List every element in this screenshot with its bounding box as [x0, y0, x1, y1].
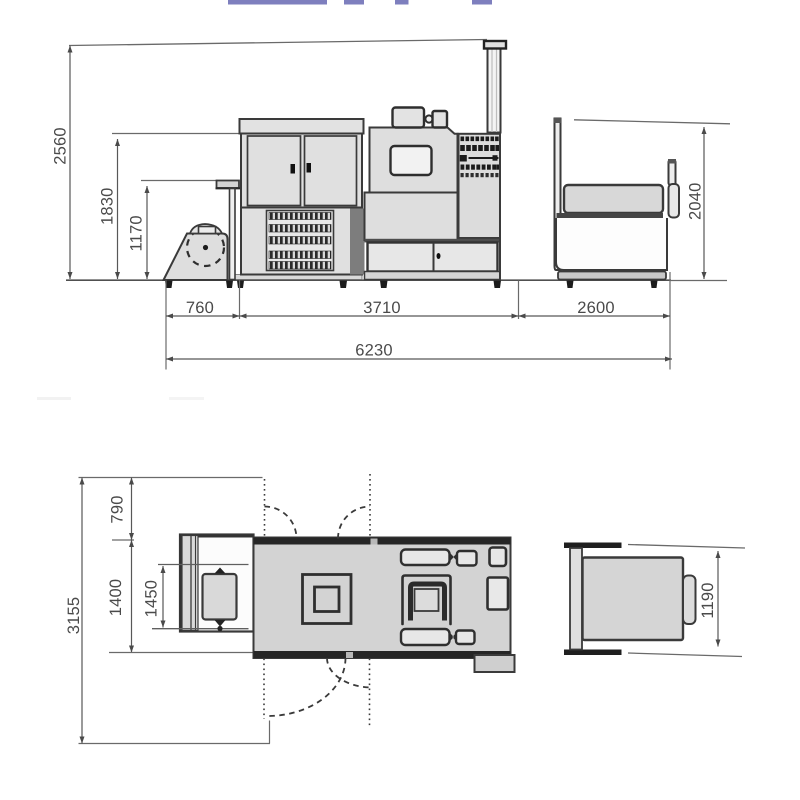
svg-text:790: 790 — [108, 495, 126, 523]
svg-text:1190: 1190 — [699, 582, 717, 618]
svg-text:1170: 1170 — [127, 215, 145, 251]
svg-text:2560: 2560 — [51, 127, 69, 165]
svg-text:760: 760 — [186, 299, 214, 317]
svg-text:1830: 1830 — [99, 188, 117, 226]
svg-text:6230: 6230 — [355, 342, 393, 360]
svg-text:1450: 1450 — [142, 580, 160, 618]
svg-text:1400: 1400 — [107, 579, 125, 617]
svg-text:3155: 3155 — [65, 597, 83, 635]
svg-text:2040: 2040 — [687, 183, 705, 221]
svg-text:2600: 2600 — [577, 299, 615, 317]
svg-text:3710: 3710 — [363, 299, 401, 317]
